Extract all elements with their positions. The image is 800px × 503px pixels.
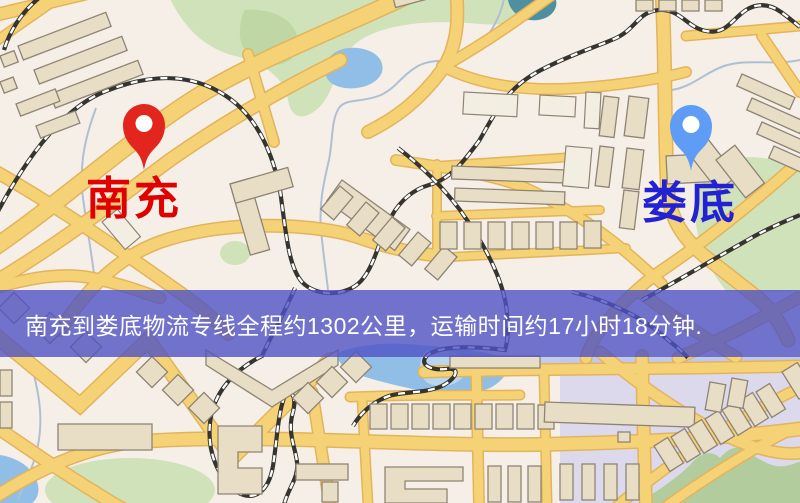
destination-marker[interactable] bbox=[669, 103, 713, 173]
origin-city-label: 南充 bbox=[86, 176, 182, 221]
origin-marker[interactable] bbox=[122, 102, 166, 172]
destination-pin-hole bbox=[683, 116, 700, 133]
destination-pin-shape bbox=[670, 105, 712, 171]
origin-pin-hole bbox=[136, 115, 153, 132]
origin-pin-shape bbox=[123, 104, 165, 170]
destination-city-label: 娄底 bbox=[642, 180, 738, 225]
map-background bbox=[0, 0, 800, 503]
route-info-text: 南充到娄底物流专线全程约1302公里，运输时间约17小时18分钟. bbox=[25, 307, 702, 341]
origin-pin-icon bbox=[122, 102, 166, 172]
destination-pin-icon bbox=[669, 103, 713, 173]
logistics-route-map: 南充 娄底 南充到娄底物流专线全程约1302公里，运输时间约17小时18分钟. bbox=[0, 0, 800, 503]
route-info-banner: 南充到娄底物流专线全程约1302公里，运输时间约17小时18分钟. bbox=[0, 290, 800, 357]
